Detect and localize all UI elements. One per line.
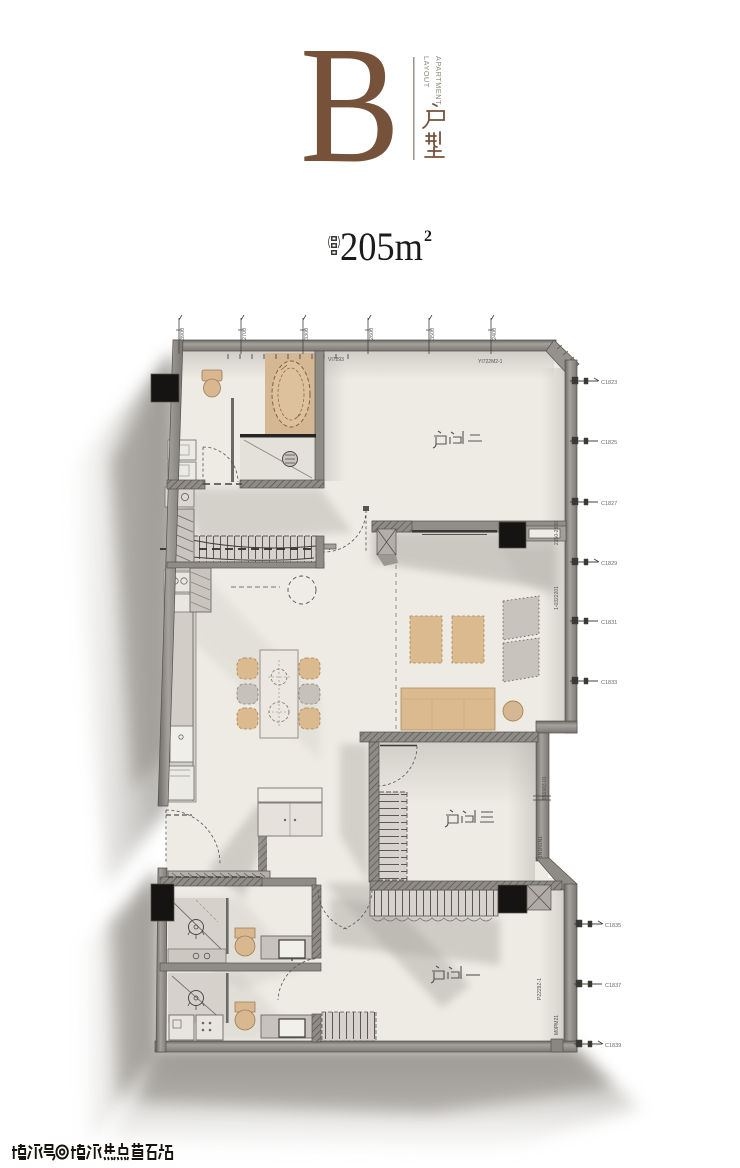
svg-text:M0PM21: M0PM21 — [554, 1015, 560, 1035]
svg-text:C1835: C1835 — [605, 923, 621, 929]
svg-text:LAYOUT: LAYOUT — [422, 56, 431, 88]
svg-text:B: B — [300, 12, 400, 198]
svg-text:2700: 2700 — [242, 328, 248, 340]
svg-text:C1825: C1825 — [601, 440, 617, 446]
svg-text:2400: 2400 — [492, 328, 498, 340]
svg-text:3300: 3300 — [304, 328, 310, 340]
svg-text:APARTMENT: APARTMENT — [434, 56, 443, 105]
svg-text:855983.01: 855983.01 — [542, 776, 548, 800]
svg-text:YI722M2-1: YI722M2-1 — [478, 359, 503, 365]
svg-text:2350-2830: 2350-2830 — [554, 521, 560, 545]
svg-text:C1831: C1831 — [601, 620, 617, 626]
svg-text:P2229Z-1: P2229Z-1 — [537, 978, 543, 1000]
svg-text:205m: 205m — [340, 224, 423, 269]
svg-text:2600: 2600 — [369, 328, 375, 340]
svg-text:1-0322201: 1-0322201 — [554, 586, 560, 610]
svg-text:C1837: C1837 — [605, 983, 621, 989]
svg-text:1N1N1N1: 1N1N1N1 — [538, 836, 544, 858]
svg-text:VI7293: VI7293 — [328, 357, 344, 363]
svg-text:3900: 3900 — [180, 328, 186, 340]
svg-text:C1827: C1827 — [601, 501, 617, 507]
svg-text:C1823: C1823 — [601, 380, 617, 386]
svg-text:2: 2 — [424, 228, 432, 245]
svg-text:C1829: C1829 — [601, 561, 617, 567]
svg-text:C1833: C1833 — [601, 680, 617, 686]
svg-text:C1839: C1839 — [605, 1043, 621, 1049]
svg-text:3500: 3500 — [430, 328, 436, 340]
